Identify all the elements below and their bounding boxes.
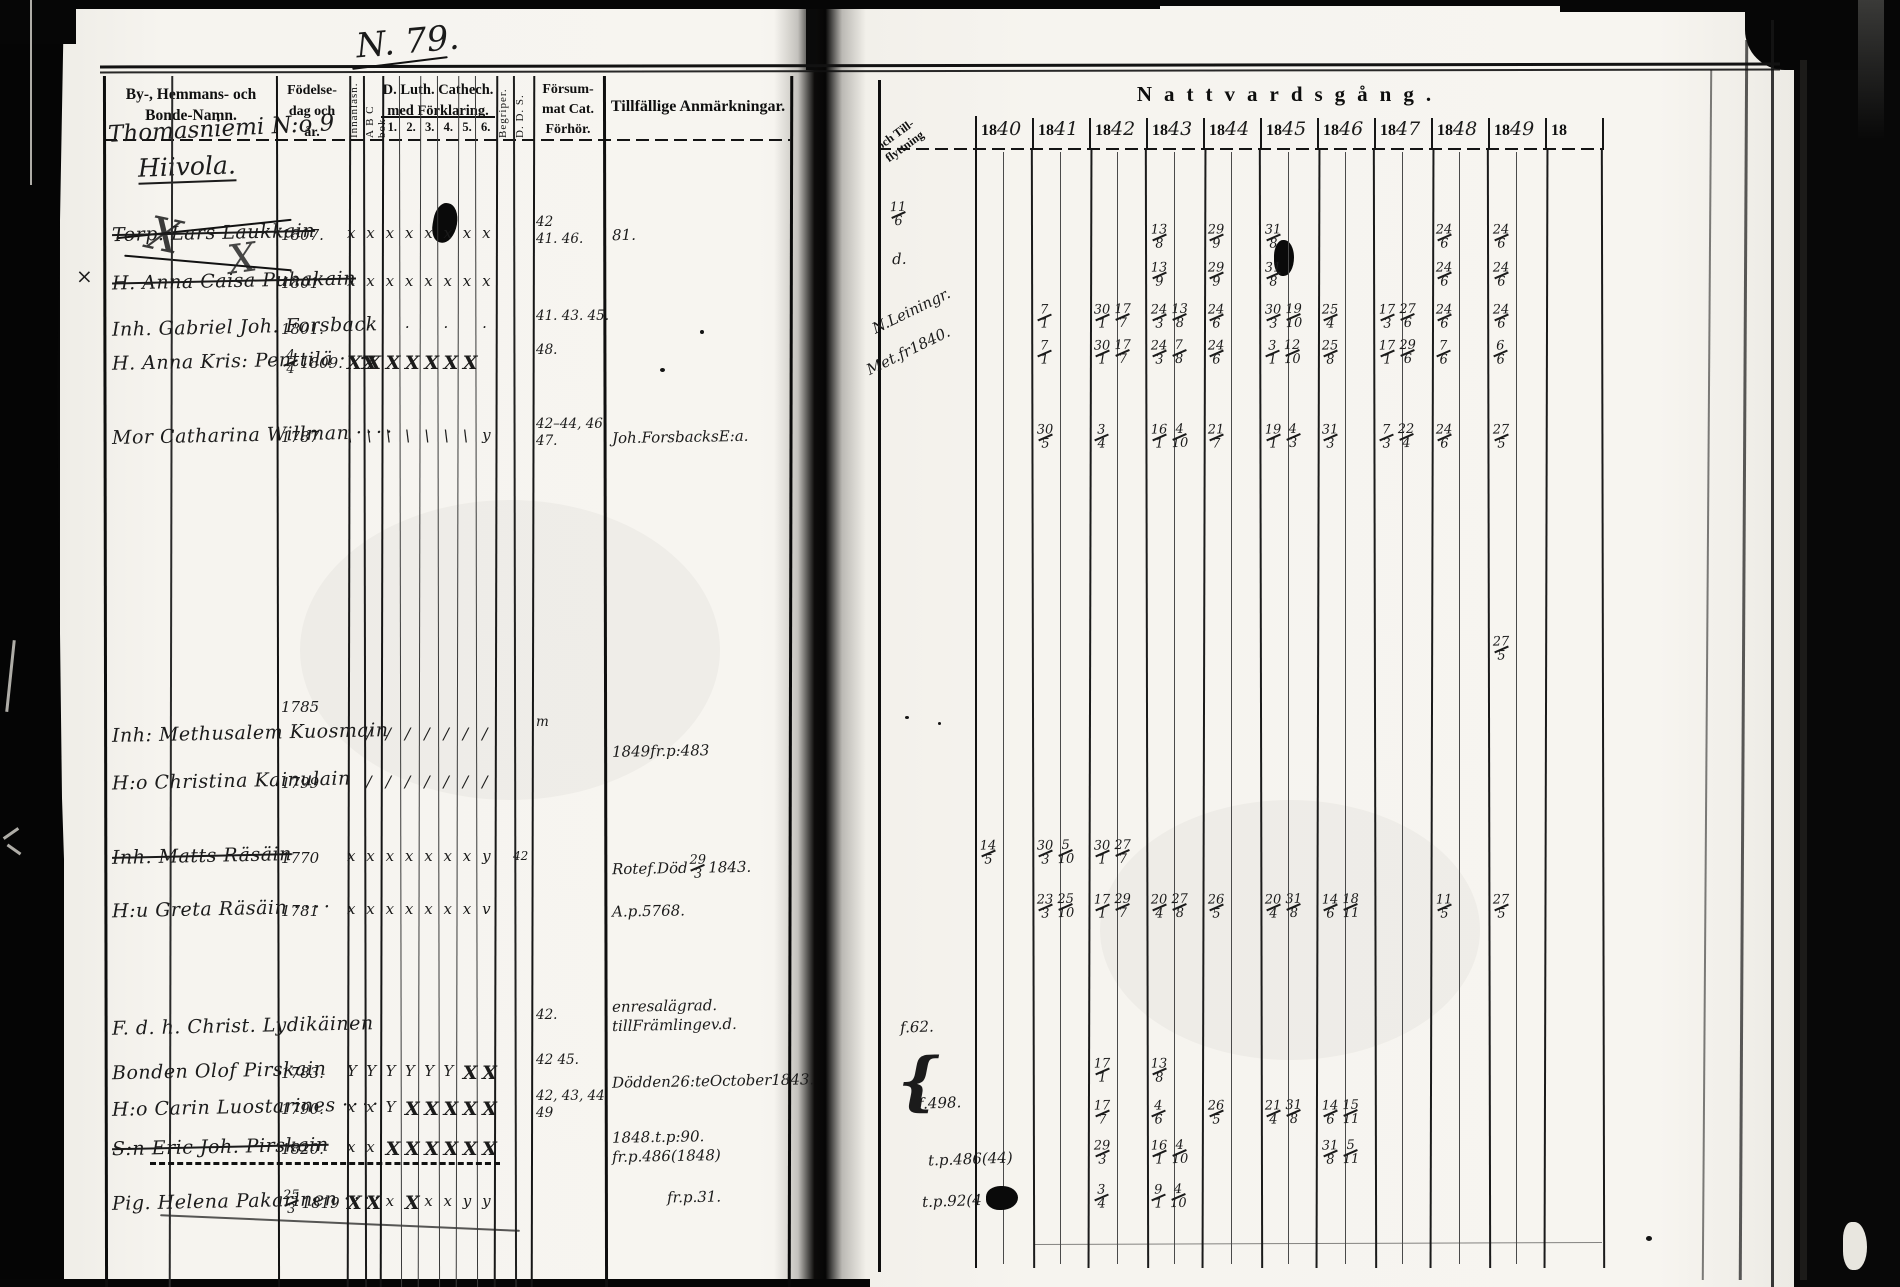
birth-year: 1799 bbox=[281, 770, 319, 792]
catechism-mark: · bbox=[482, 318, 487, 336]
catechism-mark: / bbox=[444, 772, 449, 791]
communion-dates: 246 bbox=[1491, 303, 1548, 330]
flytt-note: f.62. bbox=[900, 1013, 934, 1036]
communion-dates: 258 bbox=[1320, 339, 1377, 366]
date-fraction: 71 bbox=[1037, 304, 1053, 330]
catechism-mark: Y bbox=[405, 1062, 415, 1080]
date-fraction: 278 bbox=[1171, 894, 1188, 920]
date-fraction: 116 bbox=[890, 202, 907, 228]
nattvardsgang-title: Nattvardsgång. bbox=[975, 82, 1605, 107]
scan-speck bbox=[1646, 1236, 1652, 1241]
forsummat-note: 41. 43. 45. bbox=[536, 308, 609, 324]
date-fraction: 318 bbox=[1265, 262, 1282, 288]
communion-dates: 139 bbox=[1149, 261, 1206, 288]
year-header-separator bbox=[1431, 118, 1433, 148]
date-fraction: 115 bbox=[1436, 894, 1453, 920]
year-column-header: 1840 bbox=[981, 118, 1031, 140]
date-fraction: 299 bbox=[1208, 224, 1225, 250]
scan-speck bbox=[938, 722, 941, 725]
catechism-mark: Y bbox=[386, 1098, 396, 1116]
date-fraction: 275 bbox=[1493, 424, 1510, 450]
communion-dates: 171296 bbox=[1377, 339, 1434, 366]
communion-dates: 138 bbox=[1149, 223, 1206, 250]
communion-dates: 1461811 bbox=[1320, 893, 1377, 920]
year-header-separator bbox=[1317, 118, 1319, 148]
communion-dates: 214318 bbox=[1263, 1099, 1320, 1126]
communion-dates: 138 bbox=[1149, 1057, 1206, 1084]
date-fraction: 177 bbox=[1094, 1100, 1111, 1126]
catechism-mark: / bbox=[444, 724, 449, 743]
catechism-mark: x bbox=[424, 1192, 432, 1210]
birth-year: 1785 bbox=[281, 694, 319, 716]
date-fraction: 161 bbox=[1151, 424, 1168, 450]
date-fraction: 1811 bbox=[1342, 894, 1359, 920]
forsummat-note: 42–44, 46 bbox=[536, 416, 603, 432]
scan-speck bbox=[905, 716, 909, 719]
catechism-mark: y bbox=[482, 847, 490, 865]
date-fraction: 301 bbox=[1094, 304, 1111, 330]
begriper-column-header: Begriper. bbox=[497, 80, 512, 138]
catechism-mark: / bbox=[482, 772, 487, 791]
catechism-mark: x bbox=[405, 272, 413, 290]
catechism-mark: / bbox=[424, 724, 429, 743]
communion-dates: 246 bbox=[1491, 223, 1548, 250]
year-column-header: 1848 bbox=[1437, 118, 1487, 140]
date-fraction: 275 bbox=[1493, 894, 1510, 920]
communion-dates: 171297 bbox=[1092, 893, 1149, 920]
column-rule bbox=[878, 80, 881, 1272]
date-fraction: 214 bbox=[1265, 1100, 1282, 1126]
catechism-mark: x bbox=[482, 224, 490, 242]
remark-note: 81. bbox=[612, 222, 636, 244]
communion-dates: 19143 bbox=[1263, 423, 1320, 450]
catechism-mark: x bbox=[347, 900, 355, 918]
catechism-mark: x bbox=[347, 224, 355, 242]
year-header-separator bbox=[1089, 118, 1091, 148]
communion-dates: 161410 bbox=[1149, 423, 1206, 450]
catechism-mark: x bbox=[463, 272, 471, 290]
catechism-mark: \ bbox=[424, 426, 429, 445]
date-fraction: 313 bbox=[1322, 424, 1339, 450]
date-fraction: 43 bbox=[1285, 424, 1301, 450]
date-fraction: 410 bbox=[1171, 424, 1188, 450]
catechism-mark: X bbox=[482, 1062, 497, 1084]
date-fraction: 410 bbox=[1170, 1184, 1187, 1210]
communion-dates: 275 bbox=[1491, 635, 1548, 662]
catechism-mark: x bbox=[444, 272, 452, 290]
catechism-mark: x bbox=[424, 900, 432, 918]
catechism-mark: \ bbox=[405, 426, 410, 445]
communion-dates: 299 bbox=[1206, 261, 1263, 288]
forsummat-note: 47. bbox=[536, 433, 557, 449]
catechism-mark: / bbox=[482, 724, 487, 743]
forsummat-note: 48. bbox=[536, 342, 557, 358]
scan-border-top bbox=[0, 0, 1160, 9]
birth-year: 1787 bbox=[281, 424, 319, 446]
date-fraction: 265 bbox=[1208, 1100, 1225, 1126]
date-fraction: 410 bbox=[1171, 1140, 1188, 1166]
birth-year: 1783. bbox=[281, 1060, 324, 1082]
birth-year: 1781 bbox=[281, 898, 319, 920]
catechism-mark: · bbox=[444, 318, 449, 336]
communion-dates: 246 bbox=[1434, 423, 1491, 450]
birth-year: 1770 bbox=[281, 845, 319, 867]
date-fraction: 246 bbox=[1436, 262, 1453, 288]
date-fraction: 91 bbox=[1151, 1184, 1167, 1210]
catechism-mark: X bbox=[424, 352, 439, 374]
catechism-mark: x bbox=[424, 847, 432, 865]
communion-dates: 246 bbox=[1206, 303, 1263, 330]
date-fraction: 71 bbox=[1037, 340, 1053, 366]
catechism-mark: X bbox=[386, 352, 401, 374]
communion-dates: 265 bbox=[1206, 1099, 1263, 1126]
catechism-mark: \ bbox=[463, 426, 468, 445]
year-header-separator bbox=[1146, 118, 1148, 148]
communion-dates: 2332510 bbox=[1035, 893, 1092, 920]
year-header-separator bbox=[1545, 118, 1547, 148]
catechism-mark: / bbox=[386, 724, 391, 743]
remark-note: tillFrämlingev.d. bbox=[612, 1011, 737, 1035]
date-fraction: 253 bbox=[283, 1190, 300, 1216]
catechism-mark: x bbox=[386, 272, 394, 290]
scan-scratch bbox=[30, 0, 32, 185]
catechism-mark: X bbox=[405, 352, 420, 374]
date-fraction: 246 bbox=[1436, 224, 1453, 250]
catechism-mark: X bbox=[463, 1098, 478, 1120]
communion-dates: 246 bbox=[1434, 303, 1491, 330]
forsummat-column-header: Försum- mat Cat. Förhör. bbox=[533, 80, 603, 140]
date-fraction: 161 bbox=[1151, 1140, 1168, 1166]
date-fraction: 293 bbox=[1094, 1140, 1111, 1166]
communion-dates: 246 bbox=[1206, 339, 1263, 366]
catechism-mark: / bbox=[405, 772, 410, 791]
scan-speck bbox=[660, 368, 665, 372]
dds-note: 42 bbox=[513, 849, 528, 863]
catechism-mark: \ bbox=[366, 426, 371, 445]
date-fraction: 44 bbox=[283, 350, 298, 376]
catechism-mark: x bbox=[444, 847, 452, 865]
date-fraction: 138 bbox=[1151, 224, 1168, 250]
date-fraction: 46 bbox=[1151, 1100, 1167, 1126]
date-fraction: 318 bbox=[1285, 894, 1302, 920]
catechism-mark: · bbox=[366, 318, 371, 336]
date-fraction: 246 bbox=[1436, 424, 1453, 450]
catechism-mark: Y bbox=[424, 1062, 434, 1080]
year-column-header: 1843 bbox=[1152, 118, 1202, 140]
catechism-mark: Y bbox=[366, 1062, 376, 1080]
catechism-mark: x bbox=[405, 224, 413, 242]
catechism-mark: x bbox=[366, 900, 374, 918]
date-fraction: 171 bbox=[1094, 894, 1111, 920]
communion-dates: 161410 bbox=[1149, 1139, 1206, 1166]
catechism-mark: Y bbox=[444, 1062, 454, 1080]
catechism-mark: X bbox=[482, 1138, 497, 1160]
catechism-mark: X bbox=[347, 1192, 362, 1214]
remark-note: Joh.ForsbacksE:a. bbox=[612, 423, 749, 447]
birth-year: 1801 bbox=[281, 270, 319, 292]
date-fraction: 246 bbox=[1493, 224, 1510, 250]
page-edge-dark bbox=[1800, 60, 1807, 1280]
forsummat-note: 42, 43, 44 bbox=[536, 1088, 605, 1104]
date-fraction: 293 bbox=[689, 855, 706, 881]
communion-dates: 66 bbox=[1491, 339, 1548, 366]
date-fraction: 318 bbox=[1322, 1140, 1339, 1166]
remark-note: Dödden26:teOctober1843. bbox=[612, 1066, 815, 1092]
catechism-mark: x bbox=[366, 224, 374, 242]
communion-dates: 204278 bbox=[1149, 893, 1206, 920]
catechism-mark: / bbox=[366, 724, 371, 743]
communion-dates: 305 bbox=[1035, 423, 1092, 450]
forsummat-note: m bbox=[536, 714, 549, 730]
communion-dates: 313 bbox=[1320, 423, 1377, 450]
flytt-brace: { bbox=[898, 1044, 939, 1119]
date-fraction: 301 bbox=[1094, 340, 1111, 366]
catechism-mark: y bbox=[463, 1192, 471, 1210]
date-fraction: 139 bbox=[1151, 262, 1168, 288]
catechism-mark: x bbox=[366, 1138, 374, 1156]
year-column-header: 1841 bbox=[1038, 118, 1088, 140]
date-fraction: 318 bbox=[1285, 1100, 1302, 1126]
catechism-mark: / bbox=[386, 772, 391, 791]
catechism-mark: X bbox=[444, 352, 459, 374]
birth-year: 2531819 bbox=[281, 1190, 340, 1216]
person-name: Inh. Matts Räsäin bbox=[112, 843, 292, 869]
communion-dates: 265 bbox=[1206, 893, 1263, 920]
scan-corner-top-left bbox=[0, 0, 76, 44]
catechism-mark: x bbox=[463, 224, 471, 242]
date-fraction: 177 bbox=[1114, 304, 1131, 330]
year-header-separator bbox=[1032, 118, 1034, 148]
communion-dates: 275 bbox=[1491, 893, 1548, 920]
catechism-mark: x bbox=[424, 272, 432, 290]
catechism-mark: / bbox=[405, 724, 410, 743]
communion-dates: 246 bbox=[1434, 223, 1491, 250]
catechism-mark: \ bbox=[386, 426, 391, 445]
catechism-mark: x bbox=[444, 224, 452, 242]
birth-year: 1820. bbox=[281, 1136, 324, 1158]
scan-speck bbox=[700, 330, 704, 334]
year-column-header: 18 bbox=[1551, 118, 1601, 140]
catechism-mark: x bbox=[386, 900, 394, 918]
catechism-mark: x bbox=[463, 847, 471, 865]
date-fraction: 145 bbox=[980, 840, 997, 866]
year-header-separator bbox=[1260, 118, 1262, 148]
catechism-mark: x bbox=[463, 900, 471, 918]
date-fraction: 246 bbox=[1493, 304, 1510, 330]
forsummat-note: 42. bbox=[536, 1007, 557, 1023]
catechism-mark: / bbox=[463, 724, 468, 743]
year-column-header: 1849 bbox=[1494, 118, 1544, 140]
date-fraction: 177 bbox=[1114, 340, 1131, 366]
catechism-mark: x bbox=[424, 224, 432, 242]
year-column-header: 1842 bbox=[1095, 118, 1145, 140]
catechism-mark: x bbox=[347, 1098, 355, 1116]
date-fraction: 243 bbox=[1151, 340, 1168, 366]
communion-dates: 301177 bbox=[1092, 303, 1149, 330]
catechism-mark: X bbox=[405, 1192, 420, 1214]
date-fraction: 246 bbox=[1208, 304, 1225, 330]
flytt-note: t.p.486(44) bbox=[928, 1145, 1013, 1170]
date-fraction: 265 bbox=[1208, 894, 1225, 920]
remark-note: A.p.5768. bbox=[612, 897, 685, 920]
date-fraction: 301 bbox=[1094, 840, 1111, 866]
catechism-mark: · bbox=[405, 318, 410, 336]
catechism-mark: v bbox=[482, 900, 490, 918]
date-fraction: 217 bbox=[1208, 424, 1225, 450]
year-column-header: 1847 bbox=[1380, 118, 1430, 140]
date-fraction: 299 bbox=[1208, 262, 1225, 288]
catechism-mark: x bbox=[405, 847, 413, 865]
date-fraction: 318 bbox=[1265, 224, 1282, 250]
communion-dates: 217 bbox=[1206, 423, 1263, 450]
communion-dates: 301277 bbox=[1092, 839, 1149, 866]
abc-bok-column-header: A B C bok. bbox=[364, 80, 379, 138]
date-fraction: 246 bbox=[1493, 262, 1510, 288]
communion-dates: 293 bbox=[1092, 1139, 1149, 1166]
catechism-mark: X bbox=[463, 1138, 478, 1160]
date-fraction: 31 bbox=[1265, 340, 1281, 366]
flytt-note: 116 bbox=[888, 202, 909, 228]
date-fraction: 305 bbox=[1037, 424, 1054, 450]
communion-dates: 275 bbox=[1491, 423, 1548, 450]
gutter-top-line bbox=[806, 6, 816, 70]
catechism-mark: / bbox=[463, 772, 468, 791]
year-header-separator bbox=[1374, 118, 1376, 148]
communion-dates: 71 bbox=[1035, 303, 1092, 330]
flytt-note: d. bbox=[892, 246, 907, 268]
date-fraction: 233 bbox=[1037, 894, 1054, 920]
date-fraction: 146 bbox=[1322, 1100, 1339, 1126]
date-fraction: 296 bbox=[1399, 340, 1416, 366]
catechism-mark: X bbox=[482, 1098, 497, 1120]
catechism-mark: x bbox=[386, 224, 394, 242]
date-fraction: 1511 bbox=[1342, 1100, 1359, 1126]
date-fraction: 276 bbox=[1399, 304, 1416, 330]
communion-dates: 71 bbox=[1035, 339, 1092, 366]
date-fraction: 303 bbox=[1265, 304, 1282, 330]
communion-dates: 34 bbox=[1092, 1183, 1149, 1210]
forsummat-note: 41. 46. bbox=[536, 231, 583, 247]
catechism-mark: / bbox=[424, 772, 429, 791]
date-fraction: 78 bbox=[1171, 340, 1187, 366]
catechism-mark: x bbox=[482, 272, 490, 290]
communion-dates: 173276 bbox=[1377, 303, 1434, 330]
date-fraction: 191 bbox=[1265, 424, 1282, 450]
year-column-header: 1846 bbox=[1323, 118, 1373, 140]
year-header-separator bbox=[1602, 118, 1604, 148]
birth-year: 1790. bbox=[281, 1096, 324, 1118]
date-fraction: 275 bbox=[1493, 636, 1510, 662]
communion-dates: 318 bbox=[1263, 223, 1320, 250]
catechism-mark: X bbox=[405, 1098, 420, 1120]
catechism-mark: X bbox=[463, 1062, 478, 1084]
communion-dates: 204318 bbox=[1263, 893, 1320, 920]
date-fraction: 224 bbox=[1398, 424, 1415, 450]
date-fraction: 258 bbox=[1322, 340, 1339, 366]
year-column-header: 1844 bbox=[1209, 118, 1259, 140]
communion-dates: 171 bbox=[1092, 1057, 1149, 1084]
anmarkningar-column-header: Tillfällige Anmärkningar. bbox=[606, 98, 790, 116]
communion-dates: 299 bbox=[1206, 223, 1263, 250]
catechism-mark: x bbox=[386, 847, 394, 865]
year-header-separator bbox=[1488, 118, 1490, 148]
birth-year: 1801. bbox=[281, 316, 324, 338]
forsummat-note: 42 bbox=[536, 214, 553, 230]
catechism-mark: X bbox=[424, 1138, 439, 1160]
names-header-line1: By-, Hemmans- och bbox=[126, 86, 256, 103]
date-fraction: 246 bbox=[1208, 340, 1225, 366]
date-fraction: 510 bbox=[1057, 840, 1074, 866]
catechism-mark: x bbox=[444, 1192, 452, 1210]
catechism-mark: X bbox=[424, 1098, 439, 1120]
catechism-mark: x bbox=[405, 900, 413, 918]
date-fraction: 173 bbox=[1379, 304, 1396, 330]
date-fraction: 1910 bbox=[1285, 304, 1302, 330]
catechism-mark: x bbox=[444, 900, 452, 918]
village-subheading: Hiivola. bbox=[137, 150, 236, 184]
catechism-mark: \ bbox=[444, 426, 449, 445]
communion-dates: 301177 bbox=[1092, 339, 1149, 366]
date-fraction: 146 bbox=[1322, 894, 1339, 920]
date-fraction: 66 bbox=[1493, 340, 1509, 366]
scan-border-right bbox=[1794, 0, 1900, 1287]
scan-white-blob bbox=[1843, 1222, 1867, 1270]
communion-dates: 115 bbox=[1434, 893, 1491, 920]
communion-dates: 76 bbox=[1434, 339, 1491, 366]
date-fraction: 138 bbox=[1171, 304, 1188, 330]
column-rule bbox=[975, 116, 977, 1268]
communion-dates: 34 bbox=[1092, 423, 1149, 450]
catechism-mark: x bbox=[347, 847, 355, 865]
catechism-mark: X bbox=[444, 1138, 459, 1160]
date-fraction: 204 bbox=[1265, 894, 1282, 920]
catechism-mark: x bbox=[347, 272, 355, 290]
catechism-mark: x bbox=[366, 272, 374, 290]
date-fraction: 303 bbox=[1037, 840, 1054, 866]
communion-dates: 177 bbox=[1092, 1099, 1149, 1126]
scan-border-left bbox=[0, 0, 64, 1287]
catechism-mark: X bbox=[463, 352, 478, 374]
date-fraction: 511 bbox=[1342, 1140, 1359, 1166]
date-fraction: 243 bbox=[1151, 304, 1168, 330]
catechism-mark: y bbox=[482, 1192, 490, 1210]
communion-dates: 73224 bbox=[1377, 423, 1434, 450]
date-fraction: 76 bbox=[1436, 340, 1452, 366]
catechism-mark: Y bbox=[347, 1062, 357, 1080]
communion-dates: 3031910 bbox=[1263, 303, 1320, 330]
date-fraction: 34 bbox=[1094, 424, 1110, 450]
communion-dates: 91410 bbox=[1149, 1183, 1206, 1210]
date-fraction: 2510 bbox=[1057, 894, 1074, 920]
catechism-mark: \ bbox=[347, 426, 352, 445]
date-fraction: 34 bbox=[1094, 1184, 1110, 1210]
catechism-mark: x bbox=[366, 1098, 374, 1116]
communion-dates: 246 bbox=[1434, 261, 1491, 288]
catechism-mark: X bbox=[444, 1098, 459, 1120]
page-edge-line bbox=[1771, 20, 1774, 1287]
dds-column-header: D. D. S. bbox=[514, 80, 529, 138]
column-center-rule bbox=[1003, 152, 1004, 1264]
communion-dates: 303510 bbox=[1035, 839, 1092, 866]
communion-dates: 145 bbox=[978, 839, 1035, 866]
remark-note: fr.p.31. bbox=[667, 1184, 721, 1207]
date-fraction: 138 bbox=[1151, 1058, 1168, 1084]
catechism-mark: X bbox=[366, 352, 381, 374]
communion-dates: 24378 bbox=[1149, 339, 1206, 366]
year-header-separator bbox=[1203, 118, 1205, 148]
catechism-mark: X bbox=[386, 1138, 401, 1160]
communion-dates: 46 bbox=[1149, 1099, 1206, 1126]
